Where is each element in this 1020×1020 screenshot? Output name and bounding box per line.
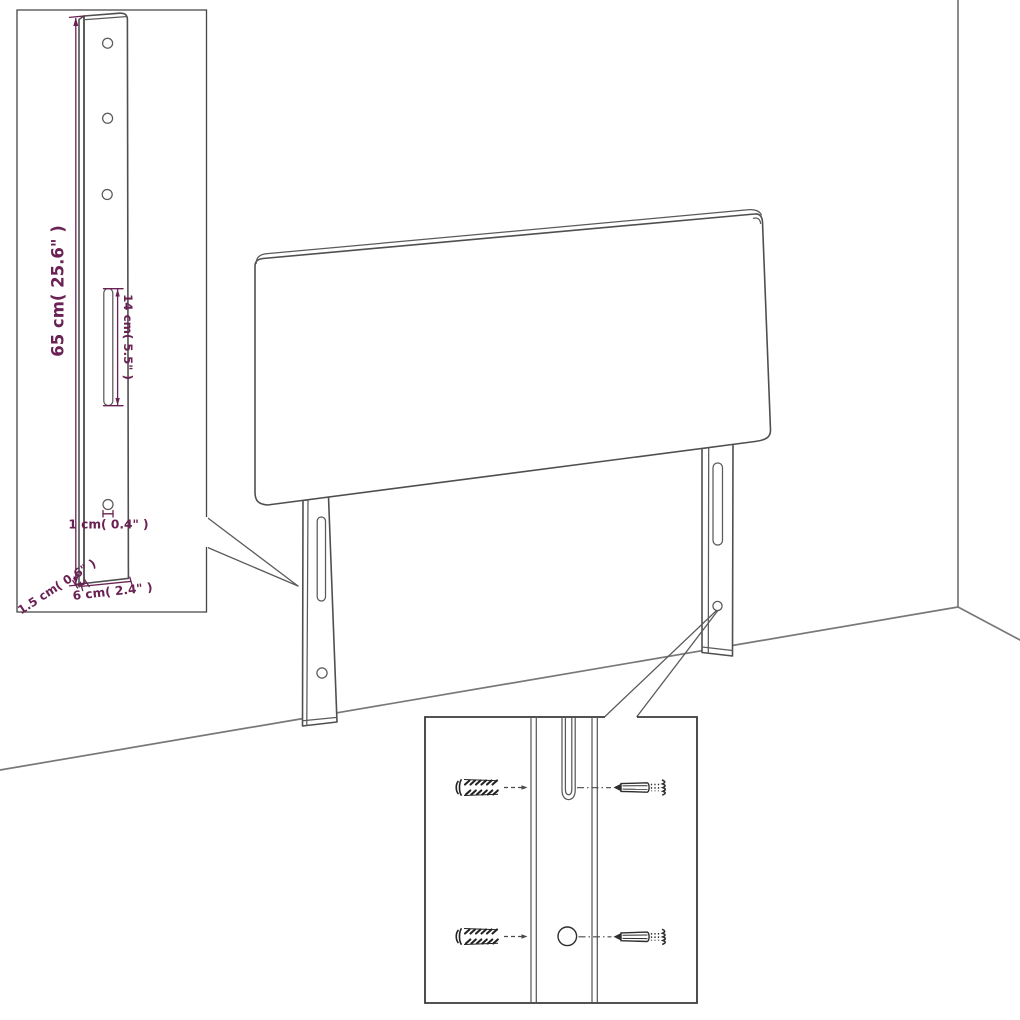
post-detail-inset: 65 cm( 25.6" ) 14 cm( 5.5" ) 1 cm( 0.4" … xyxy=(15,10,208,617)
left-leg xyxy=(303,497,338,727)
screw-inset-border xyxy=(425,717,697,1003)
slot-length-label: 14 cm( 5.5" ) xyxy=(121,294,135,380)
headboard-panel-face xyxy=(255,214,771,505)
hole-diameter-label: 1 cm( 0.4" ) xyxy=(68,518,148,532)
assembly-diagram-page: 65 cm( 25.6" ) 14 cm( 5.5" ) 1 cm( 0.4" … xyxy=(0,0,1020,1020)
callout-line-lower xyxy=(207,547,299,586)
callout-line-upper xyxy=(207,517,299,586)
floor-line-left-segment xyxy=(0,719,303,770)
screw-detail-inset xyxy=(425,717,697,1003)
post-height-label: 65 cm( 25.6" ) xyxy=(49,225,68,357)
floor-line-right-segment xyxy=(733,607,958,645)
assembly-diagram-canvas: 65 cm( 25.6" ) 14 cm( 5.5" ) 1 cm( 0.4" … xyxy=(0,0,1020,1020)
callout-top-inset xyxy=(207,517,299,586)
callout-line-right xyxy=(637,611,718,717)
headboard-panel xyxy=(255,210,771,505)
floor-line-right-wall xyxy=(958,607,1020,640)
